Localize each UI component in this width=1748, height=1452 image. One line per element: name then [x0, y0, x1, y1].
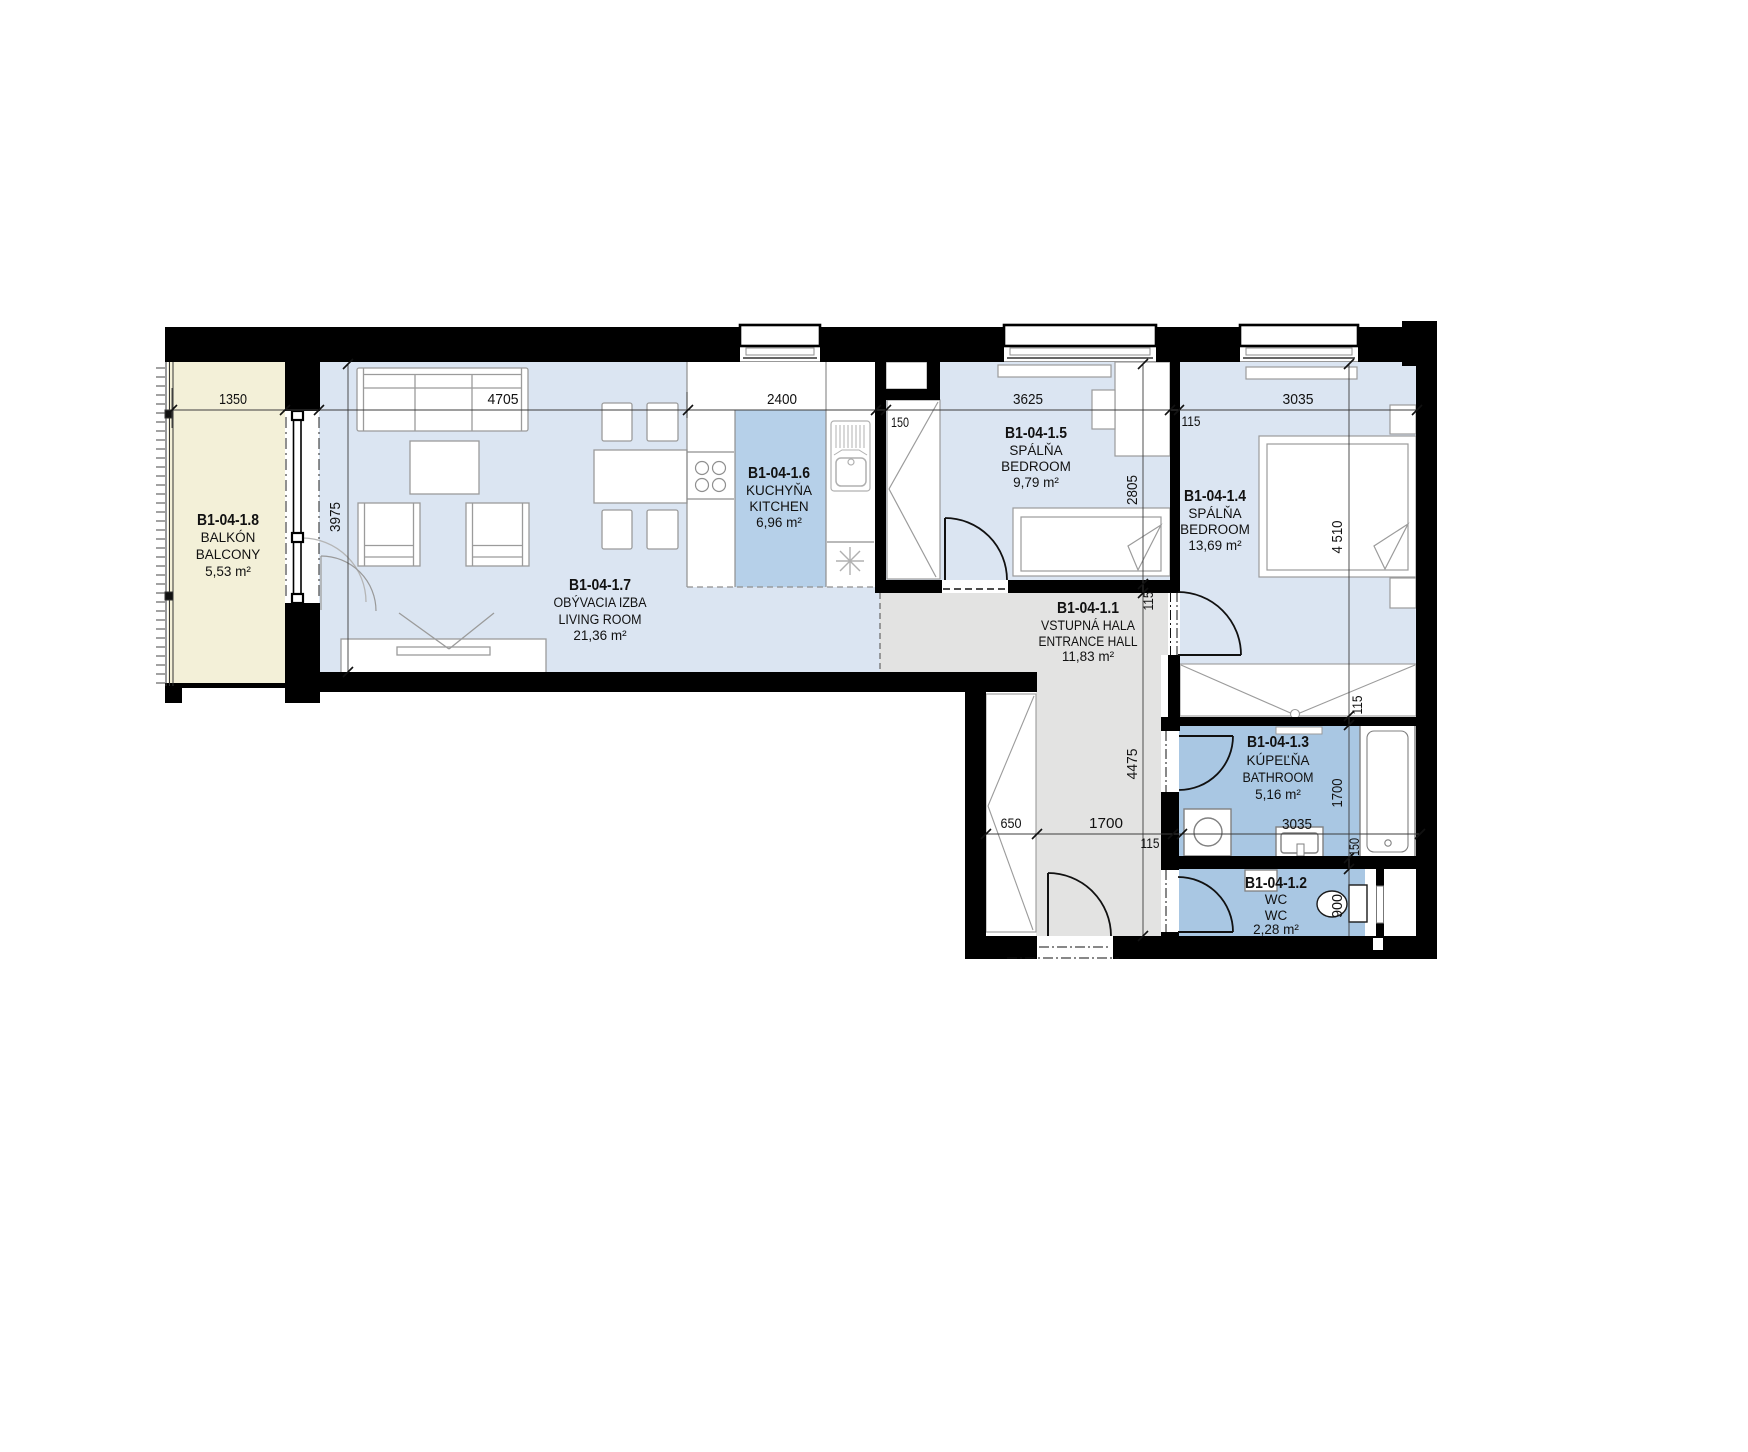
svg-text:5,53 m²: 5,53 m² — [205, 564, 251, 579]
svg-text:150: 150 — [891, 415, 909, 430]
svg-text:115: 115 — [1141, 592, 1156, 611]
svg-text:3625: 3625 — [1013, 391, 1043, 408]
svg-text:11,83 m²: 11,83 m² — [1062, 649, 1115, 664]
svg-text:650: 650 — [1001, 815, 1022, 831]
svg-text:ENTRANCE HALL: ENTRANCE HALL — [1039, 634, 1138, 649]
svg-text:B1-04-1.1: B1-04-1.1 — [1057, 600, 1119, 617]
svg-text:4705: 4705 — [488, 391, 519, 408]
svg-text:WC: WC — [1265, 892, 1288, 907]
svg-text:B1-04-1.4: B1-04-1.4 — [1184, 488, 1246, 505]
svg-text:BATHROOM: BATHROOM — [1243, 770, 1314, 785]
svg-text:KUCHYŇA: KUCHYŇA — [746, 483, 812, 498]
svg-text:KÚPEĽŇA: KÚPEĽŇA — [1246, 753, 1309, 768]
svg-text:2805: 2805 — [1124, 475, 1141, 505]
svg-text:WC: WC — [1265, 908, 1288, 923]
svg-text:115: 115 — [1350, 696, 1365, 715]
svg-text:SPÁLŇA: SPÁLŇA — [1188, 506, 1241, 521]
svg-text:21,36 m²: 21,36 m² — [573, 628, 627, 643]
svg-text:4 510: 4 510 — [1329, 521, 1346, 554]
svg-text:115: 115 — [1182, 414, 1201, 429]
svg-text:1700: 1700 — [1329, 779, 1346, 808]
svg-text:B1-04-1.7: B1-04-1.7 — [569, 577, 631, 594]
svg-text:1350: 1350 — [219, 391, 247, 408]
svg-text:13,69 m²: 13,69 m² — [1188, 538, 1242, 553]
svg-text:2400: 2400 — [767, 391, 797, 408]
svg-text:B1-04-1.3: B1-04-1.3 — [1247, 734, 1309, 751]
svg-text:VSTUPNÁ HALA: VSTUPNÁ HALA — [1041, 618, 1135, 633]
svg-text:6,96 m²: 6,96 m² — [756, 515, 802, 530]
svg-text:B1-04-1.5: B1-04-1.5 — [1005, 425, 1067, 442]
svg-text:900: 900 — [1329, 894, 1346, 918]
svg-text:SPÁLŇA: SPÁLŇA — [1009, 443, 1062, 458]
svg-text:115: 115 — [1141, 836, 1160, 851]
svg-text:3975: 3975 — [327, 502, 344, 532]
svg-text:OBÝVACIA IZBA: OBÝVACIA IZBA — [554, 595, 647, 610]
svg-text:B1-04-1.2: B1-04-1.2 — [1245, 875, 1307, 892]
svg-text:KITCHEN: KITCHEN — [749, 499, 808, 514]
svg-text:BALKÓN: BALKÓN — [201, 530, 256, 545]
svg-text:B1-04-1.8: B1-04-1.8 — [197, 512, 259, 529]
svg-text:4475: 4475 — [1124, 749, 1141, 780]
svg-text:150: 150 — [1347, 838, 1362, 856]
svg-text:3035: 3035 — [1283, 391, 1314, 408]
svg-text:2,28 m²: 2,28 m² — [1253, 922, 1299, 937]
svg-text:5,16 m²: 5,16 m² — [1255, 787, 1301, 802]
svg-text:9,79 m²: 9,79 m² — [1013, 475, 1059, 490]
svg-text:BEDROOM: BEDROOM — [1001, 459, 1071, 474]
svg-text:3035: 3035 — [1282, 816, 1312, 833]
svg-text:B1-04-1.6: B1-04-1.6 — [748, 465, 810, 482]
svg-text:1700: 1700 — [1089, 815, 1123, 832]
svg-text:LIVING ROOM: LIVING ROOM — [559, 612, 642, 627]
svg-text:BALCONY: BALCONY — [196, 547, 261, 562]
svg-text:BEDROOM: BEDROOM — [1180, 522, 1250, 537]
